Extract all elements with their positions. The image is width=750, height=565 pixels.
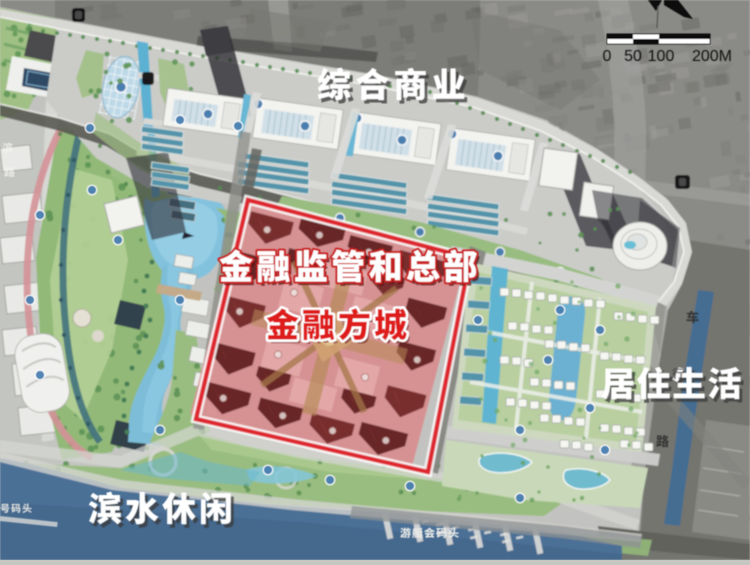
svg-text:50: 50 [624, 48, 642, 65]
svg-text:100: 100 [648, 48, 675, 65]
svg-text:200M: 200M [692, 48, 732, 65]
svg-text:0: 0 [603, 48, 612, 65]
